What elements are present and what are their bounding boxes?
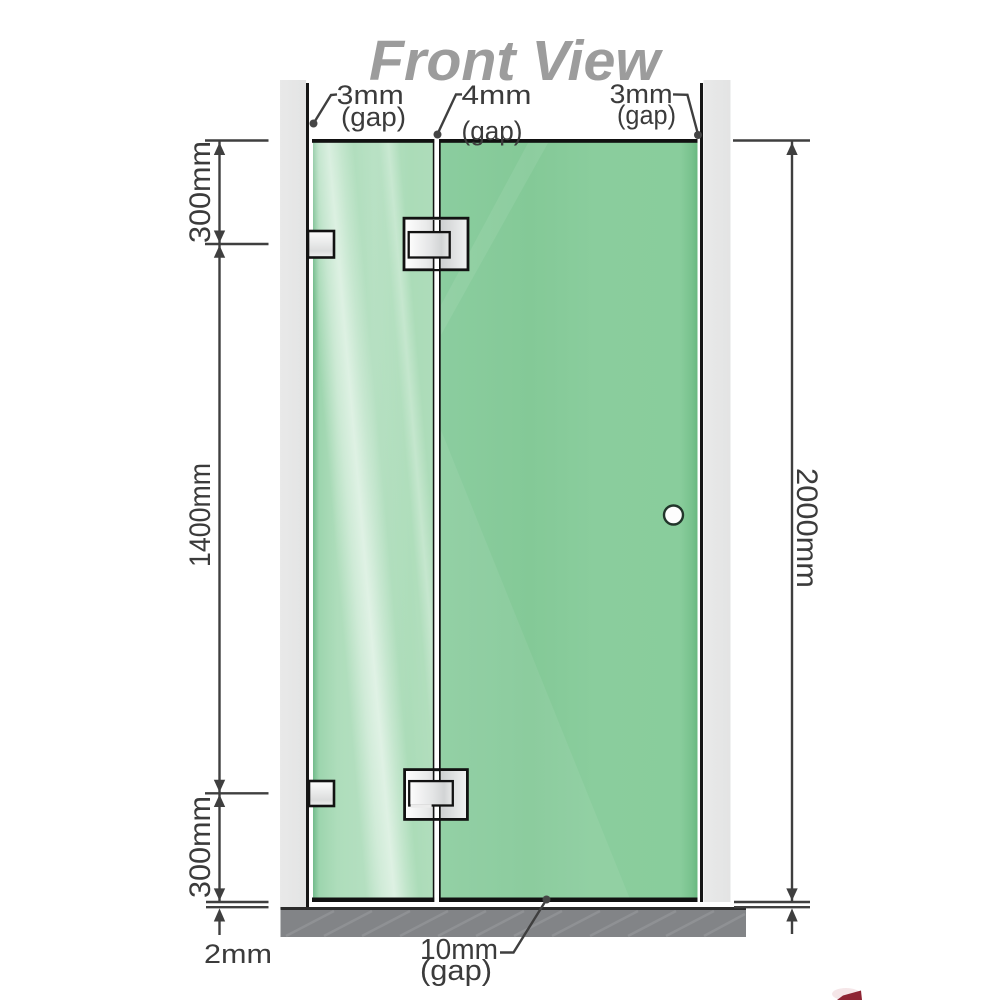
svg-text:300mm: 300mm bbox=[184, 141, 217, 243]
svg-text:1400mm: 1400mm bbox=[184, 463, 217, 567]
svg-text:(gap): (gap) bbox=[462, 116, 523, 146]
svg-text:2000mm: 2000mm bbox=[790, 468, 823, 588]
svg-text:(gap): (gap) bbox=[617, 100, 676, 130]
svg-text:300mm: 300mm bbox=[184, 796, 217, 898]
svg-text:2mm: 2mm bbox=[204, 939, 272, 969]
svg-text:(gap): (gap) bbox=[420, 955, 492, 987]
svg-text:(gap): (gap) bbox=[341, 102, 406, 132]
svg-text:4mm: 4mm bbox=[462, 80, 532, 110]
